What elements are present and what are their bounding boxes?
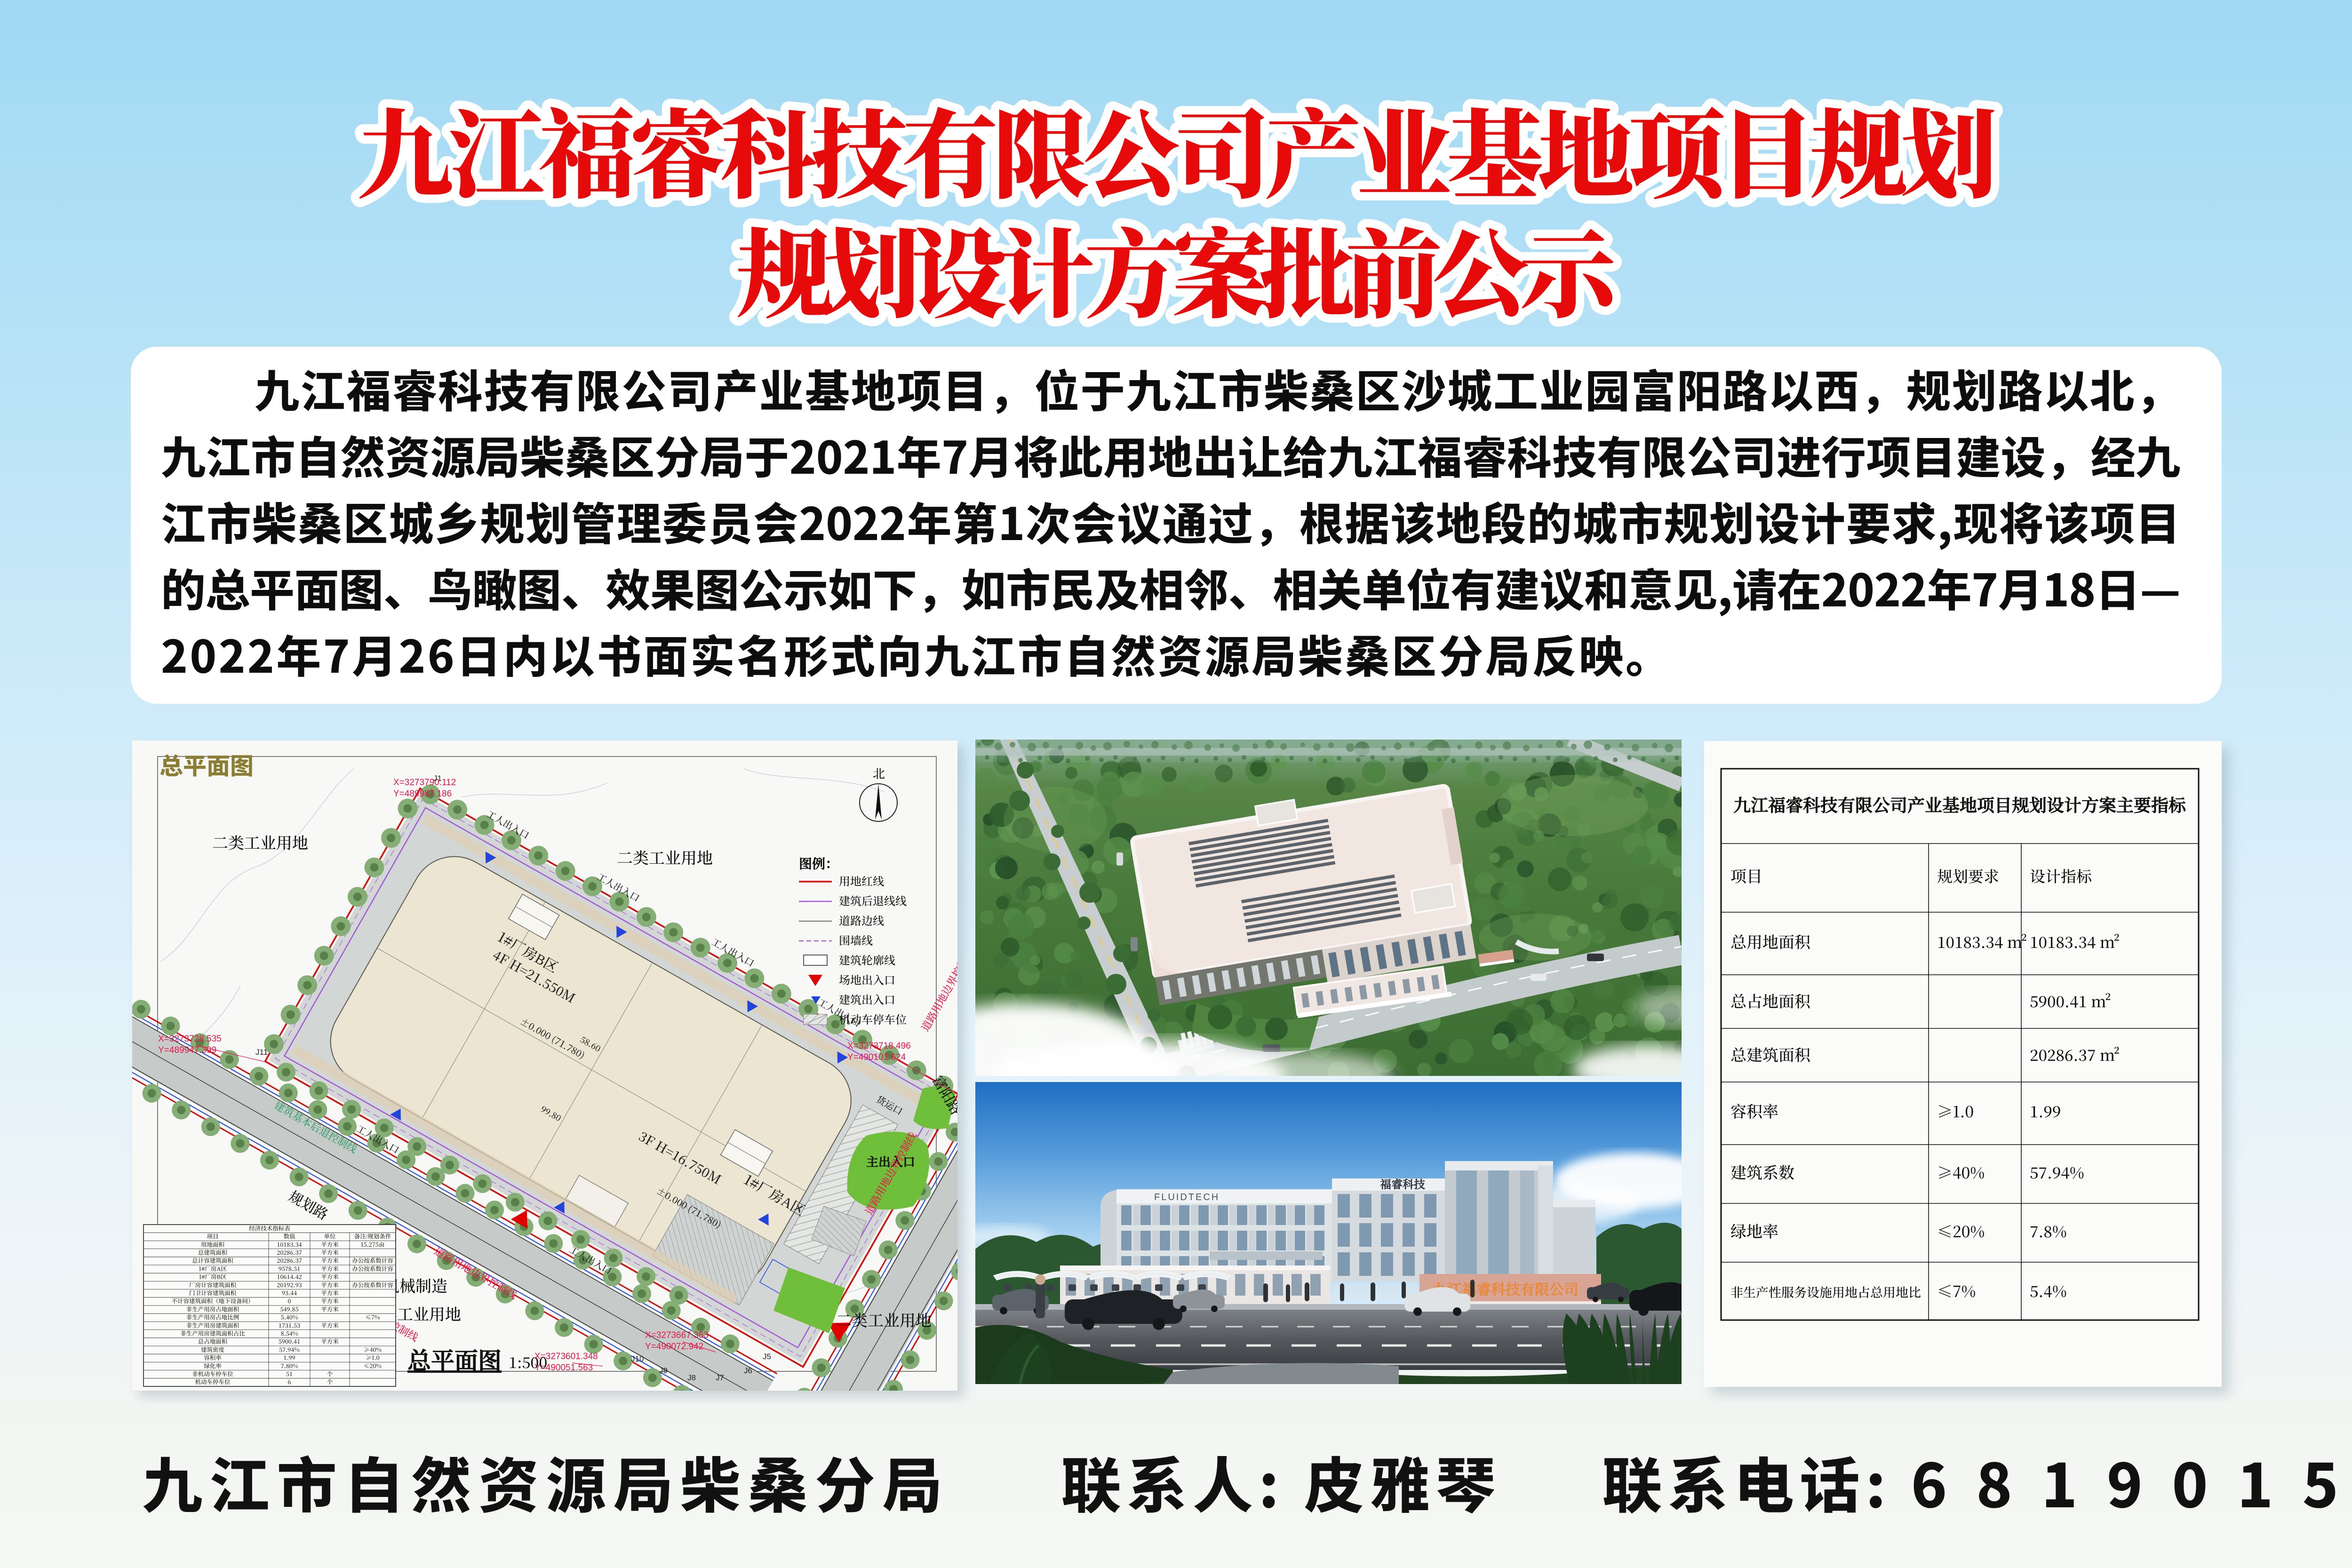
- svg-text:≥1.0: ≥1.0: [366, 1353, 380, 1362]
- svg-text:容积率: 容积率: [204, 1353, 222, 1362]
- svg-text:平方米: 平方米: [321, 1256, 339, 1265]
- svg-text:总占地面积: 总占地面积: [1730, 989, 1810, 1012]
- svg-text:数值: 数值: [283, 1232, 295, 1241]
- svg-text:1.99: 1.99: [2030, 1100, 2061, 1122]
- svg-text:道路边线: 道路边线: [839, 912, 884, 928]
- svg-text:办公按系数计容: 办公按系数计容: [352, 1281, 393, 1289]
- svg-text:经济技术指标表: 经济技术指标表: [249, 1224, 290, 1232]
- svg-text:51: 51: [286, 1369, 293, 1378]
- svg-text:个: 个: [327, 1377, 333, 1386]
- svg-text:建筑后退线线: 建筑后退线线: [839, 892, 907, 908]
- svg-text:建筑出入口: 建筑出入口: [839, 991, 895, 1007]
- svg-text:20286.37: 20286.37: [277, 1256, 302, 1265]
- svg-text:机动车停车位: 机动车停车位: [839, 1011, 907, 1027]
- svg-text:总计容建筑面积: 总计容建筑面积: [192, 1256, 233, 1265]
- svg-text:8.54%: 8.54%: [281, 1329, 298, 1337]
- svg-text:93.44: 93.44: [282, 1289, 297, 1297]
- svg-text:57.94%: 57.94%: [279, 1345, 300, 1353]
- svg-text:J11: J11: [255, 1048, 268, 1057]
- svg-text:X=3273790.112: X=3273790.112: [393, 778, 456, 788]
- svg-text:用地红线: 用地红线: [839, 872, 884, 889]
- svg-text:7.8%: 7.8%: [2030, 1220, 2067, 1242]
- svg-text:J5: J5: [763, 1352, 771, 1361]
- svg-text:规划设计方案批前公示: 规划设计方案批前公示: [736, 198, 1614, 337]
- svg-text:平方米: 平方米: [321, 1240, 339, 1249]
- svg-text:非生产用房占地面积: 非生产用房占地面积: [186, 1305, 239, 1313]
- svg-text:门卫计容建筑面积: 门卫计容建筑面积: [189, 1289, 236, 1297]
- svg-text:项目: 项目: [1730, 864, 1762, 887]
- svg-text:绿化率: 绿化率: [204, 1361, 222, 1370]
- svg-text:FLUIDTECH: FLUIDTECH: [1154, 1192, 1220, 1202]
- svg-text:≤7%: ≤7%: [365, 1313, 380, 1321]
- svg-text:绿地率: 绿地率: [1730, 1219, 1778, 1242]
- svg-text:规划要求: 规划要求: [1937, 865, 1999, 887]
- svg-text:≤20%: ≤20%: [1937, 1220, 1985, 1242]
- svg-text:7.80%: 7.80%: [281, 1361, 298, 1370]
- svg-text:不计容建筑面积（地下设备间）: 不计容建筑面积（地下设备间）: [171, 1297, 254, 1305]
- svg-text:九江福睿科技有限公司产业基地项目规划设计方案主要指标: 九江福睿科技有限公司产业基地项目规划设计方案主要指标: [1733, 791, 2186, 817]
- svg-text:1#厂房B区: 1#厂房B区: [199, 1273, 226, 1281]
- svg-text:1.99: 1.99: [283, 1353, 295, 1362]
- svg-text:设计指标: 设计指标: [2030, 865, 2092, 887]
- svg-text:机动车停车位: 机动车停车位: [195, 1377, 231, 1386]
- svg-text:道路用地边界控制线: 道路用地边界控制线: [917, 946, 957, 1034]
- svg-text:二类工业用地: 二类工业用地: [836, 1308, 932, 1331]
- svg-text:≥40%: ≥40%: [364, 1345, 382, 1353]
- svg-text:≥40%: ≥40%: [1937, 1161, 1985, 1183]
- svg-text:Y=489947.399: Y=489947.399: [158, 1045, 216, 1055]
- svg-text:总平面图: 总平面图: [159, 748, 254, 781]
- svg-text:围墙线: 围墙线: [839, 931, 873, 948]
- svg-text:J8: J8: [687, 1373, 696, 1382]
- svg-text:总建筑面积: 总建筑面积: [1730, 1043, 1810, 1066]
- svg-text:图例：: 图例：: [799, 854, 838, 873]
- svg-text:平方米: 平方米: [321, 1297, 339, 1305]
- svg-text:非生产性服务设施用地占总用地比: 非生产性服务设施用地占总用地比: [1730, 1282, 1921, 1301]
- svg-text:15.275亩: 15.275亩: [361, 1240, 385, 1249]
- svg-text:总占地面积: 总占地面积: [198, 1337, 228, 1345]
- svg-text:项目: 项目: [207, 1232, 218, 1241]
- svg-text:平方米: 平方米: [321, 1337, 339, 1345]
- svg-text:平方米: 平方米: [321, 1273, 339, 1281]
- svg-text:J1: J1: [433, 774, 442, 783]
- svg-text:X=3273667.363: X=3273667.363: [645, 1330, 709, 1340]
- svg-text:备注/规划条件: 备注/规划条件: [354, 1232, 391, 1241]
- svg-text:建筑轮廓线: 建筑轮廓线: [839, 951, 895, 968]
- svg-text:20192.93: 20192.93: [277, 1281, 302, 1289]
- svg-text:容积率: 容积率: [1730, 1099, 1778, 1122]
- svg-text:平方米: 平方米: [321, 1248, 339, 1257]
- svg-text:0: 0: [287, 1297, 291, 1305]
- svg-text:5.4%: 5.4%: [2030, 1280, 2067, 1302]
- svg-text:Y=489987.186: Y=489987.186: [393, 789, 452, 799]
- svg-text:9578.51: 9578.51: [279, 1264, 300, 1273]
- svg-text:二类工业用地: 二类工业用地: [212, 830, 308, 853]
- svg-text:≥1.0: ≥1.0: [1937, 1100, 1974, 1122]
- svg-text:20286.37 m²: 20286.37 m²: [2030, 1043, 2120, 1066]
- svg-text:九江福睿科技有限公司产业基地项目规划: 九江福睿科技有限公司产业基地项目规划: [357, 79, 1994, 217]
- svg-text:J6: J6: [744, 1366, 752, 1375]
- svg-text:北: 北: [873, 764, 885, 782]
- svg-text:平方米: 平方米: [321, 1305, 339, 1313]
- svg-text:平方米: 平方米: [321, 1321, 339, 1329]
- svg-text:6: 6: [287, 1377, 291, 1386]
- svg-text:1731.53: 1731.53: [279, 1321, 300, 1329]
- svg-text:非生产用房占地比例: 非生产用房占地比例: [186, 1313, 239, 1321]
- svg-text:10614.42: 10614.42: [277, 1273, 302, 1281]
- svg-text:5900.41 m²: 5900.41 m²: [2030, 990, 2111, 1012]
- svg-text:1#厂房A区: 1#厂房A区: [199, 1264, 227, 1273]
- svg-text:10183.34 m²: 10183.34 m²: [1937, 931, 2027, 953]
- svg-text:总建筑面积: 总建筑面积: [198, 1248, 228, 1257]
- svg-text:≤20%: ≤20%: [364, 1361, 382, 1370]
- svg-text:J7: J7: [716, 1373, 724, 1382]
- svg-text:10183.34 m²: 10183.34 m²: [2030, 931, 2120, 953]
- svg-text:20286.37: 20286.37: [277, 1248, 302, 1257]
- svg-text:建筑系数: 建筑系数: [1730, 1160, 1794, 1183]
- svg-text:1:500: 1:500: [509, 1351, 547, 1373]
- svg-text:Y=490072.942: Y=490072.942: [645, 1342, 703, 1352]
- svg-text:非生产用房建筑面积占比: 非生产用房建筑面积占比: [180, 1329, 245, 1337]
- svg-text:5.40%: 5.40%: [281, 1313, 298, 1321]
- svg-text:≤7%: ≤7%: [1937, 1280, 1976, 1302]
- svg-text:福睿科技: 福睿科技: [1379, 1175, 1426, 1192]
- svg-text:J10: J10: [631, 1354, 644, 1363]
- svg-text:总用地面积: 总用地面积: [1730, 930, 1810, 953]
- svg-text:厂房计容建筑面积: 厂房计容建筑面积: [189, 1281, 236, 1289]
- svg-text:建筑密度: 建筑密度: [201, 1345, 225, 1353]
- svg-text:5900.41: 5900.41: [279, 1337, 300, 1345]
- svg-text:X=3273728.535: X=3273728.535: [158, 1034, 222, 1044]
- svg-text:平方米: 平方米: [321, 1289, 339, 1297]
- svg-text:非生产用房建筑面积: 非生产用房建筑面积: [186, 1321, 239, 1329]
- svg-text:10183.34: 10183.34: [277, 1240, 302, 1249]
- svg-text:非机动车停车位: 非机动车停车位: [192, 1369, 233, 1378]
- svg-text:二类工业用地: 二类工业用地: [617, 845, 713, 868]
- svg-text:J9: J9: [659, 1366, 668, 1375]
- svg-text:用地面积: 用地面积: [201, 1240, 224, 1249]
- svg-text:X=3273718.496: X=3273718.496: [847, 1041, 911, 1051]
- svg-text:个: 个: [327, 1369, 333, 1378]
- svg-text:场地出入口: 场地出入口: [839, 971, 895, 987]
- svg-text:总平面图: 总平面图: [407, 1342, 502, 1376]
- svg-text:平方米: 平方米: [321, 1264, 339, 1273]
- svg-text:549.85: 549.85: [280, 1305, 298, 1313]
- svg-text:办公按系数计容: 办公按系数计容: [352, 1256, 393, 1265]
- svg-text:57.94%: 57.94%: [2030, 1161, 2084, 1183]
- svg-text:单位: 单位: [324, 1232, 336, 1241]
- svg-text:办公按系数计容: 办公按系数计容: [352, 1264, 393, 1273]
- svg-text:平方米: 平方米: [321, 1281, 339, 1289]
- svg-text:Y=490101.624: Y=490101.624: [847, 1052, 906, 1062]
